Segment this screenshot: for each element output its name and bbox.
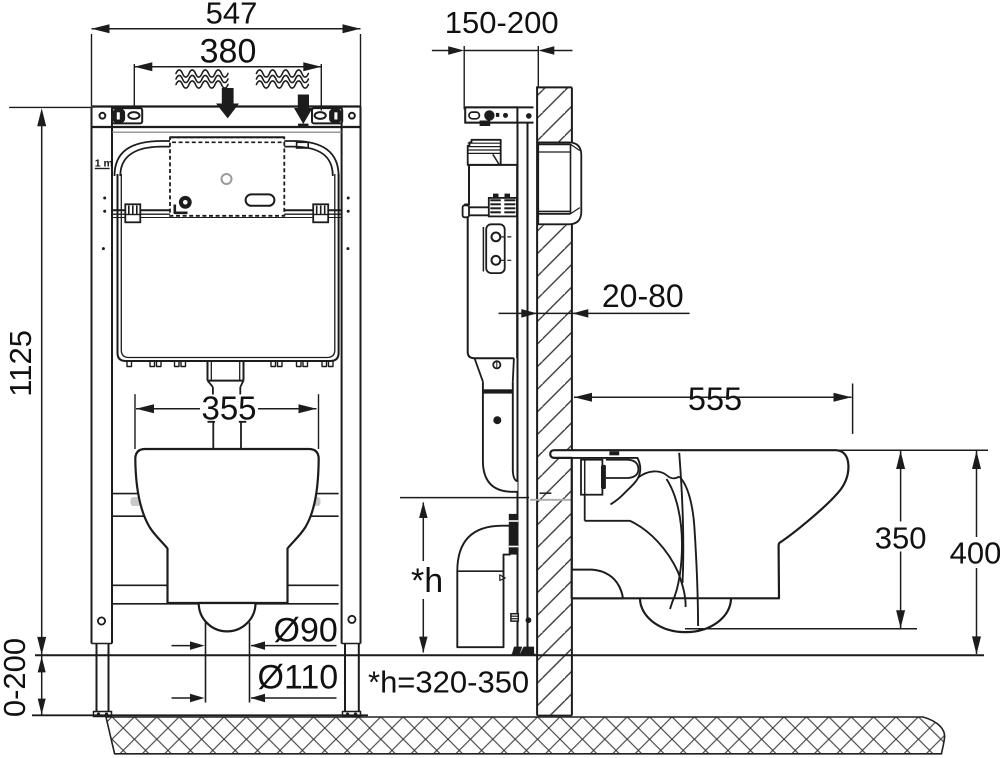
svg-text:555: 555: [688, 381, 742, 417]
svg-text:Ø90: Ø90: [274, 612, 338, 650]
svg-text:*h: *h: [411, 562, 443, 600]
svg-text:*h=320-350: *h=320-350: [368, 665, 529, 700]
svg-text:1 m: 1 m: [95, 158, 113, 170]
svg-text:150-200: 150-200: [445, 5, 559, 40]
svg-text:Ø110: Ø110: [258, 659, 339, 697]
svg-text:380: 380: [200, 32, 257, 70]
svg-text:350: 350: [875, 521, 927, 556]
svg-text:1125: 1125: [3, 330, 38, 397]
svg-text:20-80: 20-80: [602, 278, 684, 314]
svg-text:547: 547: [206, 0, 258, 31]
svg-text:400: 400: [950, 536, 1000, 571]
svg-text:0-200: 0-200: [0, 638, 32, 717]
svg-text:355: 355: [201, 390, 256, 427]
